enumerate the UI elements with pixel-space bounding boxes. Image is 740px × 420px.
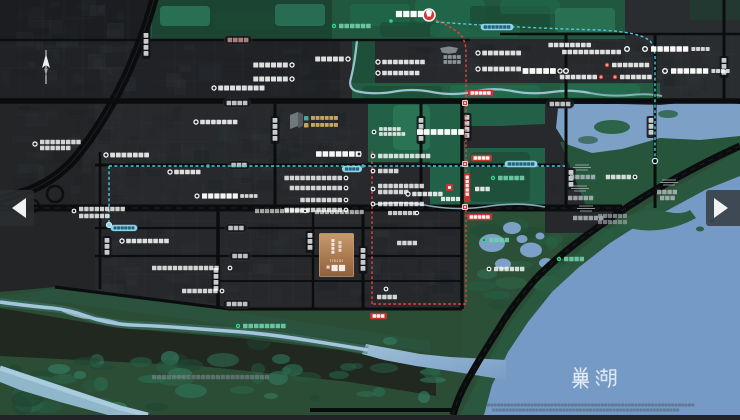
svg-text:TISJOI: TISJOI	[329, 259, 343, 263]
